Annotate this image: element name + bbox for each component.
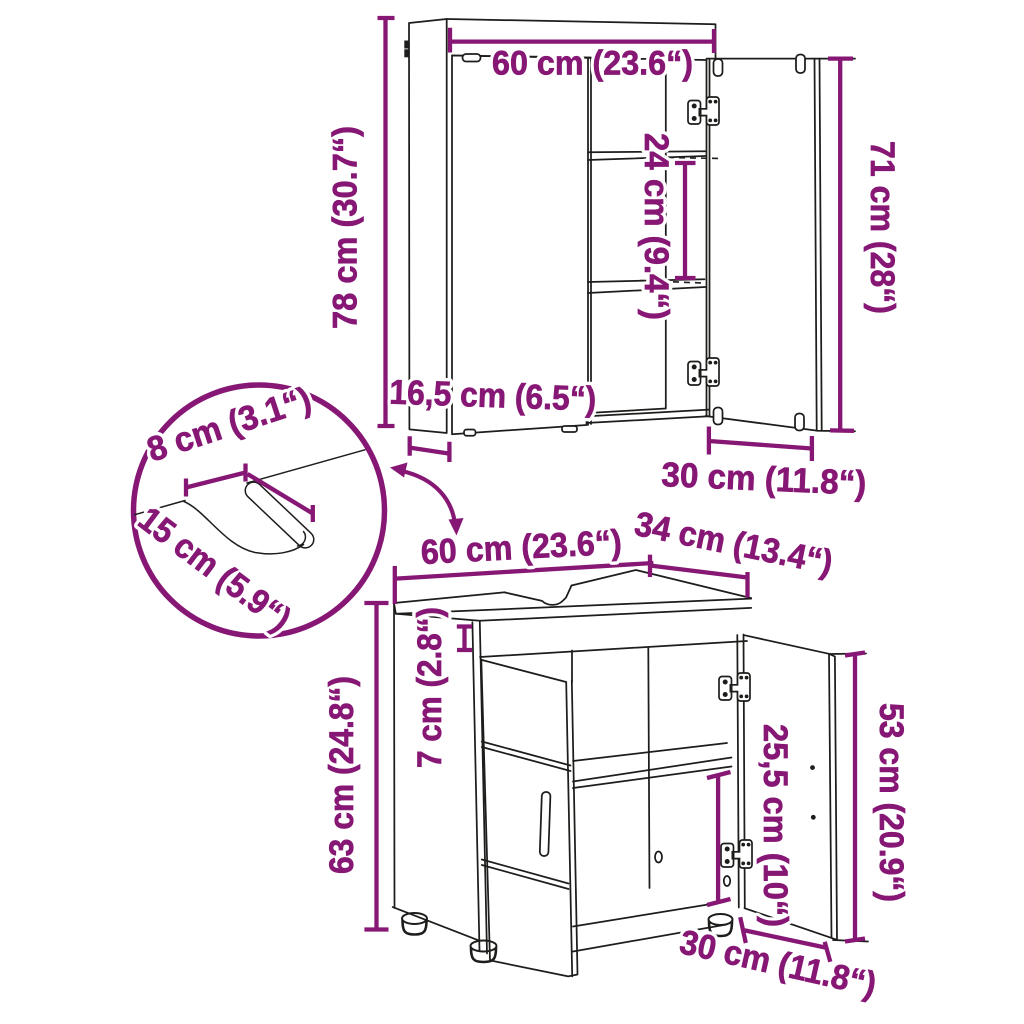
svg-text:25,5 cm (10“): 25,5 cm (10“)	[756, 724, 794, 927]
svg-text:60 cm (23.6“): 60 cm (23.6“)	[492, 45, 693, 83]
svg-text:71 cm (28“): 71 cm (28“)	[863, 141, 901, 314]
svg-text:63 cm (24.8“): 63 cm (24.8“)	[323, 676, 361, 874]
svg-text:16,5 cm (6.5“): 16,5 cm (6.5“)	[389, 374, 597, 419]
svg-text:53 cm (20.9“): 53 cm (20.9“)	[872, 703, 910, 902]
svg-text:78 cm (30.7“): 78 cm (30.7“)	[327, 126, 365, 329]
svg-text:7 cm (2.8“): 7 cm (2.8“)	[411, 607, 449, 768]
svg-text:24 cm (9.4“): 24 cm (9.4“)	[637, 133, 675, 320]
